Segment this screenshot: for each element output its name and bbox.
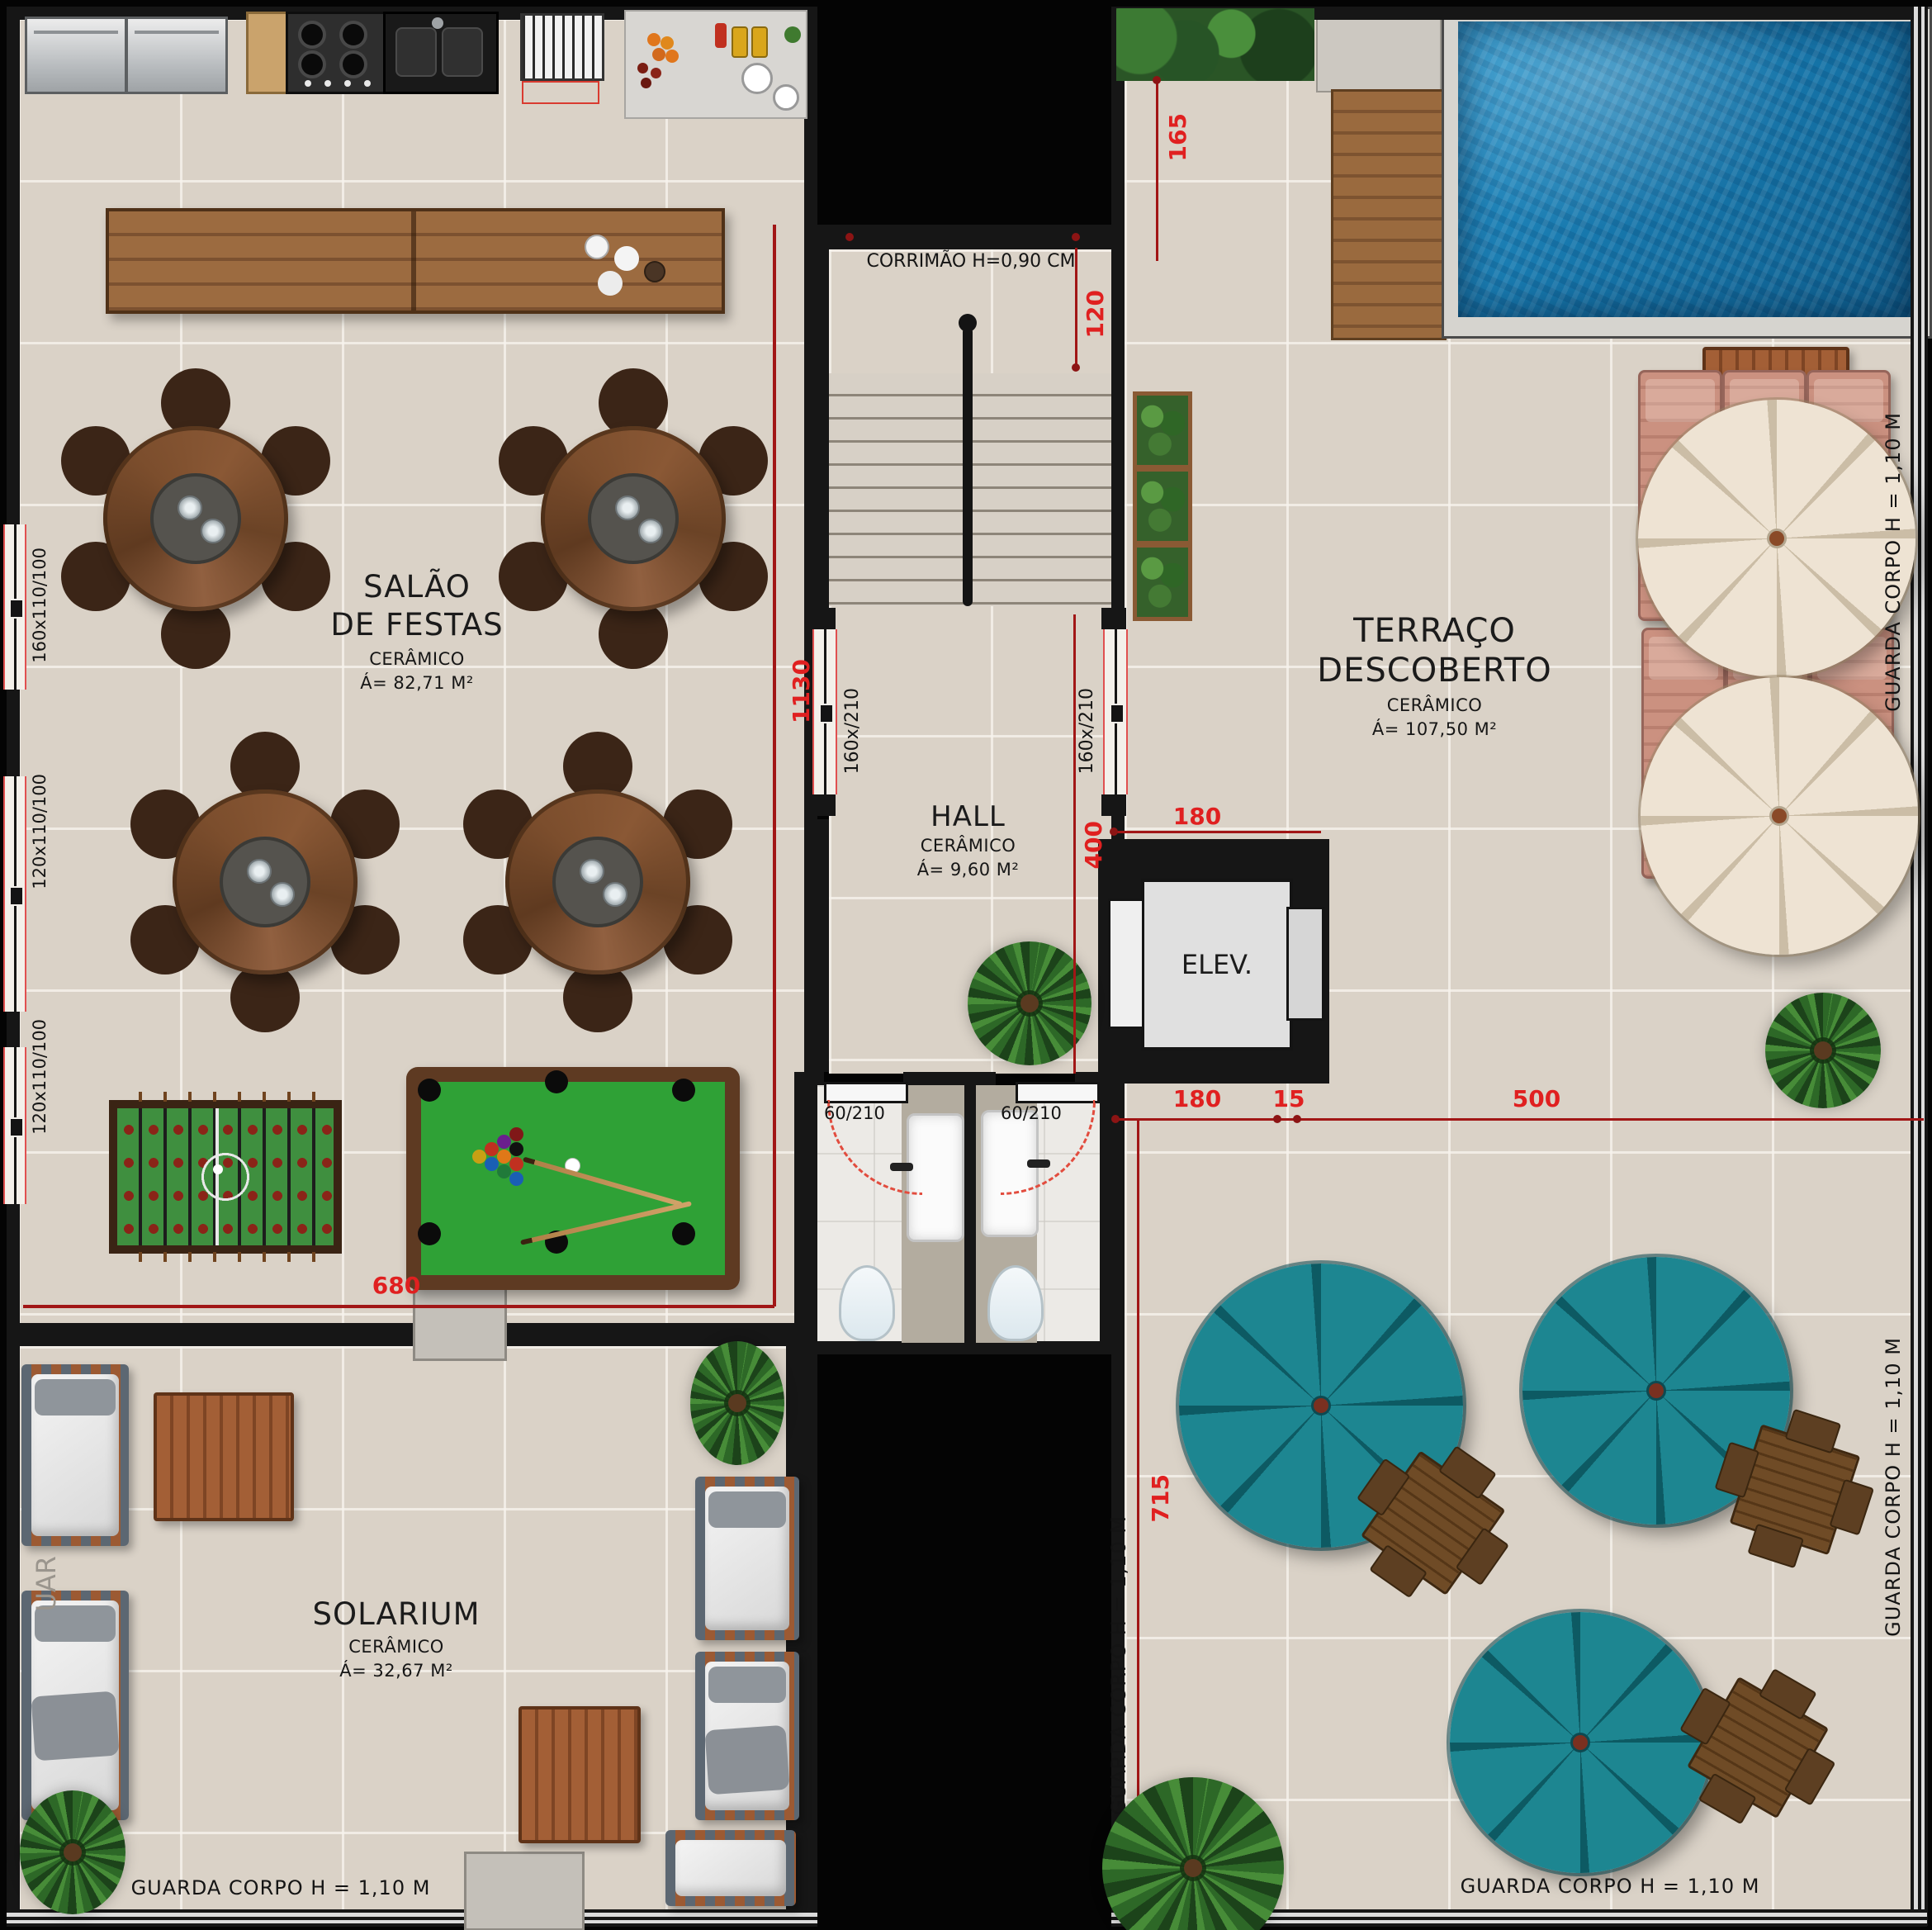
glass <box>638 519 663 543</box>
room-material: CERÂMICO <box>1288 694 1581 718</box>
sun-lounger <box>695 1652 799 1820</box>
room-name: SOLARIUM <box>272 1596 520 1634</box>
parasol-beige <box>1638 400 1915 677</box>
cutting-board <box>246 12 289 94</box>
swimming-pool <box>1458 21 1911 317</box>
wall-bath-east <box>1100 1072 1111 1354</box>
concrete-pad-solarium-bottom <box>464 1852 585 1930</box>
guarda-corpo-note-mid: GUARDA CORPO H = 1,10 M <box>1101 1508 1136 1822</box>
dimension-dot <box>1111 1115 1120 1123</box>
guarda-corpo-note-partial: UAR <box>28 1534 64 1634</box>
service-door-marks <box>522 81 599 104</box>
dining-table-round <box>482 766 713 998</box>
vent-grill <box>520 13 604 81</box>
dimension-1130: 1130 <box>769 638 832 745</box>
burner-icon <box>343 24 364 45</box>
parasol-beige <box>1641 677 1918 955</box>
kitchen-sink <box>383 12 499 94</box>
pocket-icon <box>418 1079 441 1102</box>
party-room-label: SALÃO DE FESTAS CERÂMICO Á= 82,71 M² <box>252 568 582 695</box>
solarium-label: SOLARIUM CERÂMICO Á= 32,67 M² <box>272 1596 520 1683</box>
knob-icon <box>305 80 311 87</box>
dimension-dot <box>1293 1115 1301 1123</box>
dimension-line-1130 <box>773 225 776 1306</box>
dimension-line-bottom <box>1115 1118 1924 1121</box>
floor-plan: CORRIMÃO H=0,90 CM 160x/210 160x/210 160… <box>0 0 1932 1930</box>
refrigerator-1 <box>25 17 127 94</box>
planter-box <box>1133 543 1192 621</box>
guarda-corpo-note-ne: GUARDA CORPO H = 1,10 M <box>1876 409 1911 714</box>
room-area: Á= 9,60 M² <box>892 858 1044 882</box>
railing-solarium-south <box>7 1909 817 1927</box>
wall-bath-north-b <box>903 1072 996 1085</box>
room-name: DE FESTAS <box>252 606 582 644</box>
dimension-line-680 <box>23 1305 774 1308</box>
burner-icon <box>343 54 364 75</box>
room-area: Á= 32,67 M² <box>272 1659 520 1683</box>
wall-bath-west <box>794 1072 806 1354</box>
guarda-corpo-note-se: GUARDA CORPO H = 1,10 M <box>1441 1875 1779 1898</box>
dimension-680: 680 <box>347 1272 446 1299</box>
railing-terrace-east <box>1911 7 1928 1926</box>
french-press <box>644 261 665 282</box>
dining-table-round <box>149 766 381 998</box>
dimension-500: 500 <box>1487 1085 1586 1112</box>
room-material: CERÂMICO <box>272 1635 520 1659</box>
dimension-dot <box>1153 76 1161 84</box>
glass <box>270 882 295 907</box>
room-area: Á= 107,50 M² <box>1288 718 1581 742</box>
elevator-label: ELEV. <box>1181 949 1252 980</box>
glass <box>580 859 604 884</box>
wall-bath-divider <box>964 1072 976 1354</box>
wall-hall-west-lower <box>817 819 829 1072</box>
dimension-15: 15 <box>1256 1085 1322 1112</box>
plate <box>741 63 773 94</box>
knob-icon <box>344 80 351 87</box>
room-name: TERRAÇO <box>1288 611 1581 651</box>
dimension-dot <box>1273 1115 1281 1123</box>
guarda-corpo-note-sw: GUARDA CORPO H = 1,10 M <box>116 1876 446 1899</box>
dimension-dot <box>1072 363 1080 372</box>
room-material: CERÂMICO <box>892 834 1044 858</box>
room-name: DESCOBERTO <box>1288 651 1581 690</box>
hall-label: HALL CERÂMICO Á= 9,60 M² <box>892 799 1044 882</box>
foliage-strip <box>1116 8 1314 81</box>
burner-icon <box>301 24 323 45</box>
wall-party-solarium-divider <box>7 1323 817 1346</box>
window-2-spec: 120x110/100 <box>23 749 56 914</box>
dimension-715: 715 <box>1141 1449 1179 1548</box>
planter-box <box>1133 467 1192 545</box>
burner-icon <box>301 54 323 75</box>
handrail-pin-left <box>845 233 854 241</box>
wall-stair-west-upper <box>817 225 829 613</box>
sink-bowl <box>395 27 437 77</box>
glass <box>201 519 225 543</box>
door-left-spec: 160x/210 <box>836 652 869 809</box>
wood-slat-table <box>154 1392 294 1521</box>
guarda-corpo-note-e: GUARDA CORPO H = 1,10 M <box>1876 1334 1911 1639</box>
dimension-180-elev: 180 <box>1156 803 1238 830</box>
bottle-yellow <box>732 26 748 58</box>
bottle-red <box>715 23 727 48</box>
cooktop <box>286 12 386 94</box>
dimension-165: 165 <box>1158 88 1197 187</box>
foosball-table <box>109 1100 342 1254</box>
door-left-cap-bottom <box>811 794 836 816</box>
room-name: SALÃO <box>252 568 582 606</box>
knob-icon <box>324 80 331 87</box>
bath2-door-spec: 60/210 <box>1001 1103 1091 1123</box>
door-left-cap-top <box>811 608 836 629</box>
door-right-cap-top <box>1101 608 1126 629</box>
fruit-bowl <box>647 33 661 46</box>
bath1-door-spec: 60/210 <box>824 1103 915 1123</box>
glass <box>603 882 627 907</box>
stair-center-handrail <box>963 327 973 606</box>
room-area: Á= 82,71 M² <box>252 671 582 695</box>
sun-lounger <box>21 1364 129 1546</box>
dimension-120: 120 <box>1077 271 1113 357</box>
dimension-180: 180 <box>1156 1085 1238 1112</box>
terrace-label: TERRAÇO DESCOBERTO CERÂMICO Á= 107,50 M² <box>1288 611 1581 742</box>
room-material: CERÂMICO <box>252 647 582 671</box>
wall-bath-south <box>794 1341 1111 1354</box>
corrimao-note: CORRIMÃO H=0,90 CM <box>842 251 1100 276</box>
elevator-cab: ELEV. <box>1141 879 1293 1050</box>
sliding-door-right <box>1103 629 1128 794</box>
sink-bowl <box>442 27 483 77</box>
foosball-ball <box>213 1164 223 1174</box>
sun-lounger <box>665 1830 796 1906</box>
room-name: HALL <box>892 799 1044 834</box>
planter-box <box>1133 391 1192 469</box>
wood-bar-table <box>106 208 725 314</box>
glass <box>247 859 272 884</box>
coffee-cups <box>585 235 609 259</box>
glass <box>615 496 640 520</box>
knob-icon <box>364 80 371 87</box>
pool-table <box>406 1067 740 1290</box>
window-3-spec: 120x110/100 <box>23 994 56 1159</box>
billiard-balls <box>472 1150 486 1164</box>
wine-glasses <box>637 63 648 74</box>
door-right-spec: 160x/210 <box>1070 652 1103 809</box>
wood-slat-table <box>519 1706 641 1843</box>
glass <box>178 496 202 520</box>
bar-counter <box>624 10 807 119</box>
plant-pot <box>784 26 801 43</box>
sun-lounger <box>695 1477 799 1640</box>
plate <box>773 84 799 111</box>
faucet-icon <box>432 17 443 29</box>
dimension-400: 400 <box>1075 799 1111 890</box>
handrail-pin-right <box>1072 233 1080 241</box>
palm-plant <box>1765 993 1881 1108</box>
concrete-pad-pool <box>1316 8 1442 92</box>
elevator-counterweight <box>1286 907 1324 1021</box>
dimension-line-715 <box>1137 1118 1139 1909</box>
elevator-door <box>1108 899 1144 1029</box>
pool-wood-deck <box>1331 89 1447 340</box>
dimension-line-180-elev <box>1113 831 1321 833</box>
bottle-yellow <box>751 26 768 58</box>
palm-plant <box>20 1790 125 1914</box>
window-1-spec: 160x110/100 <box>23 523 56 688</box>
refrigerator-2 <box>125 17 228 94</box>
palm-plant <box>690 1341 784 1465</box>
